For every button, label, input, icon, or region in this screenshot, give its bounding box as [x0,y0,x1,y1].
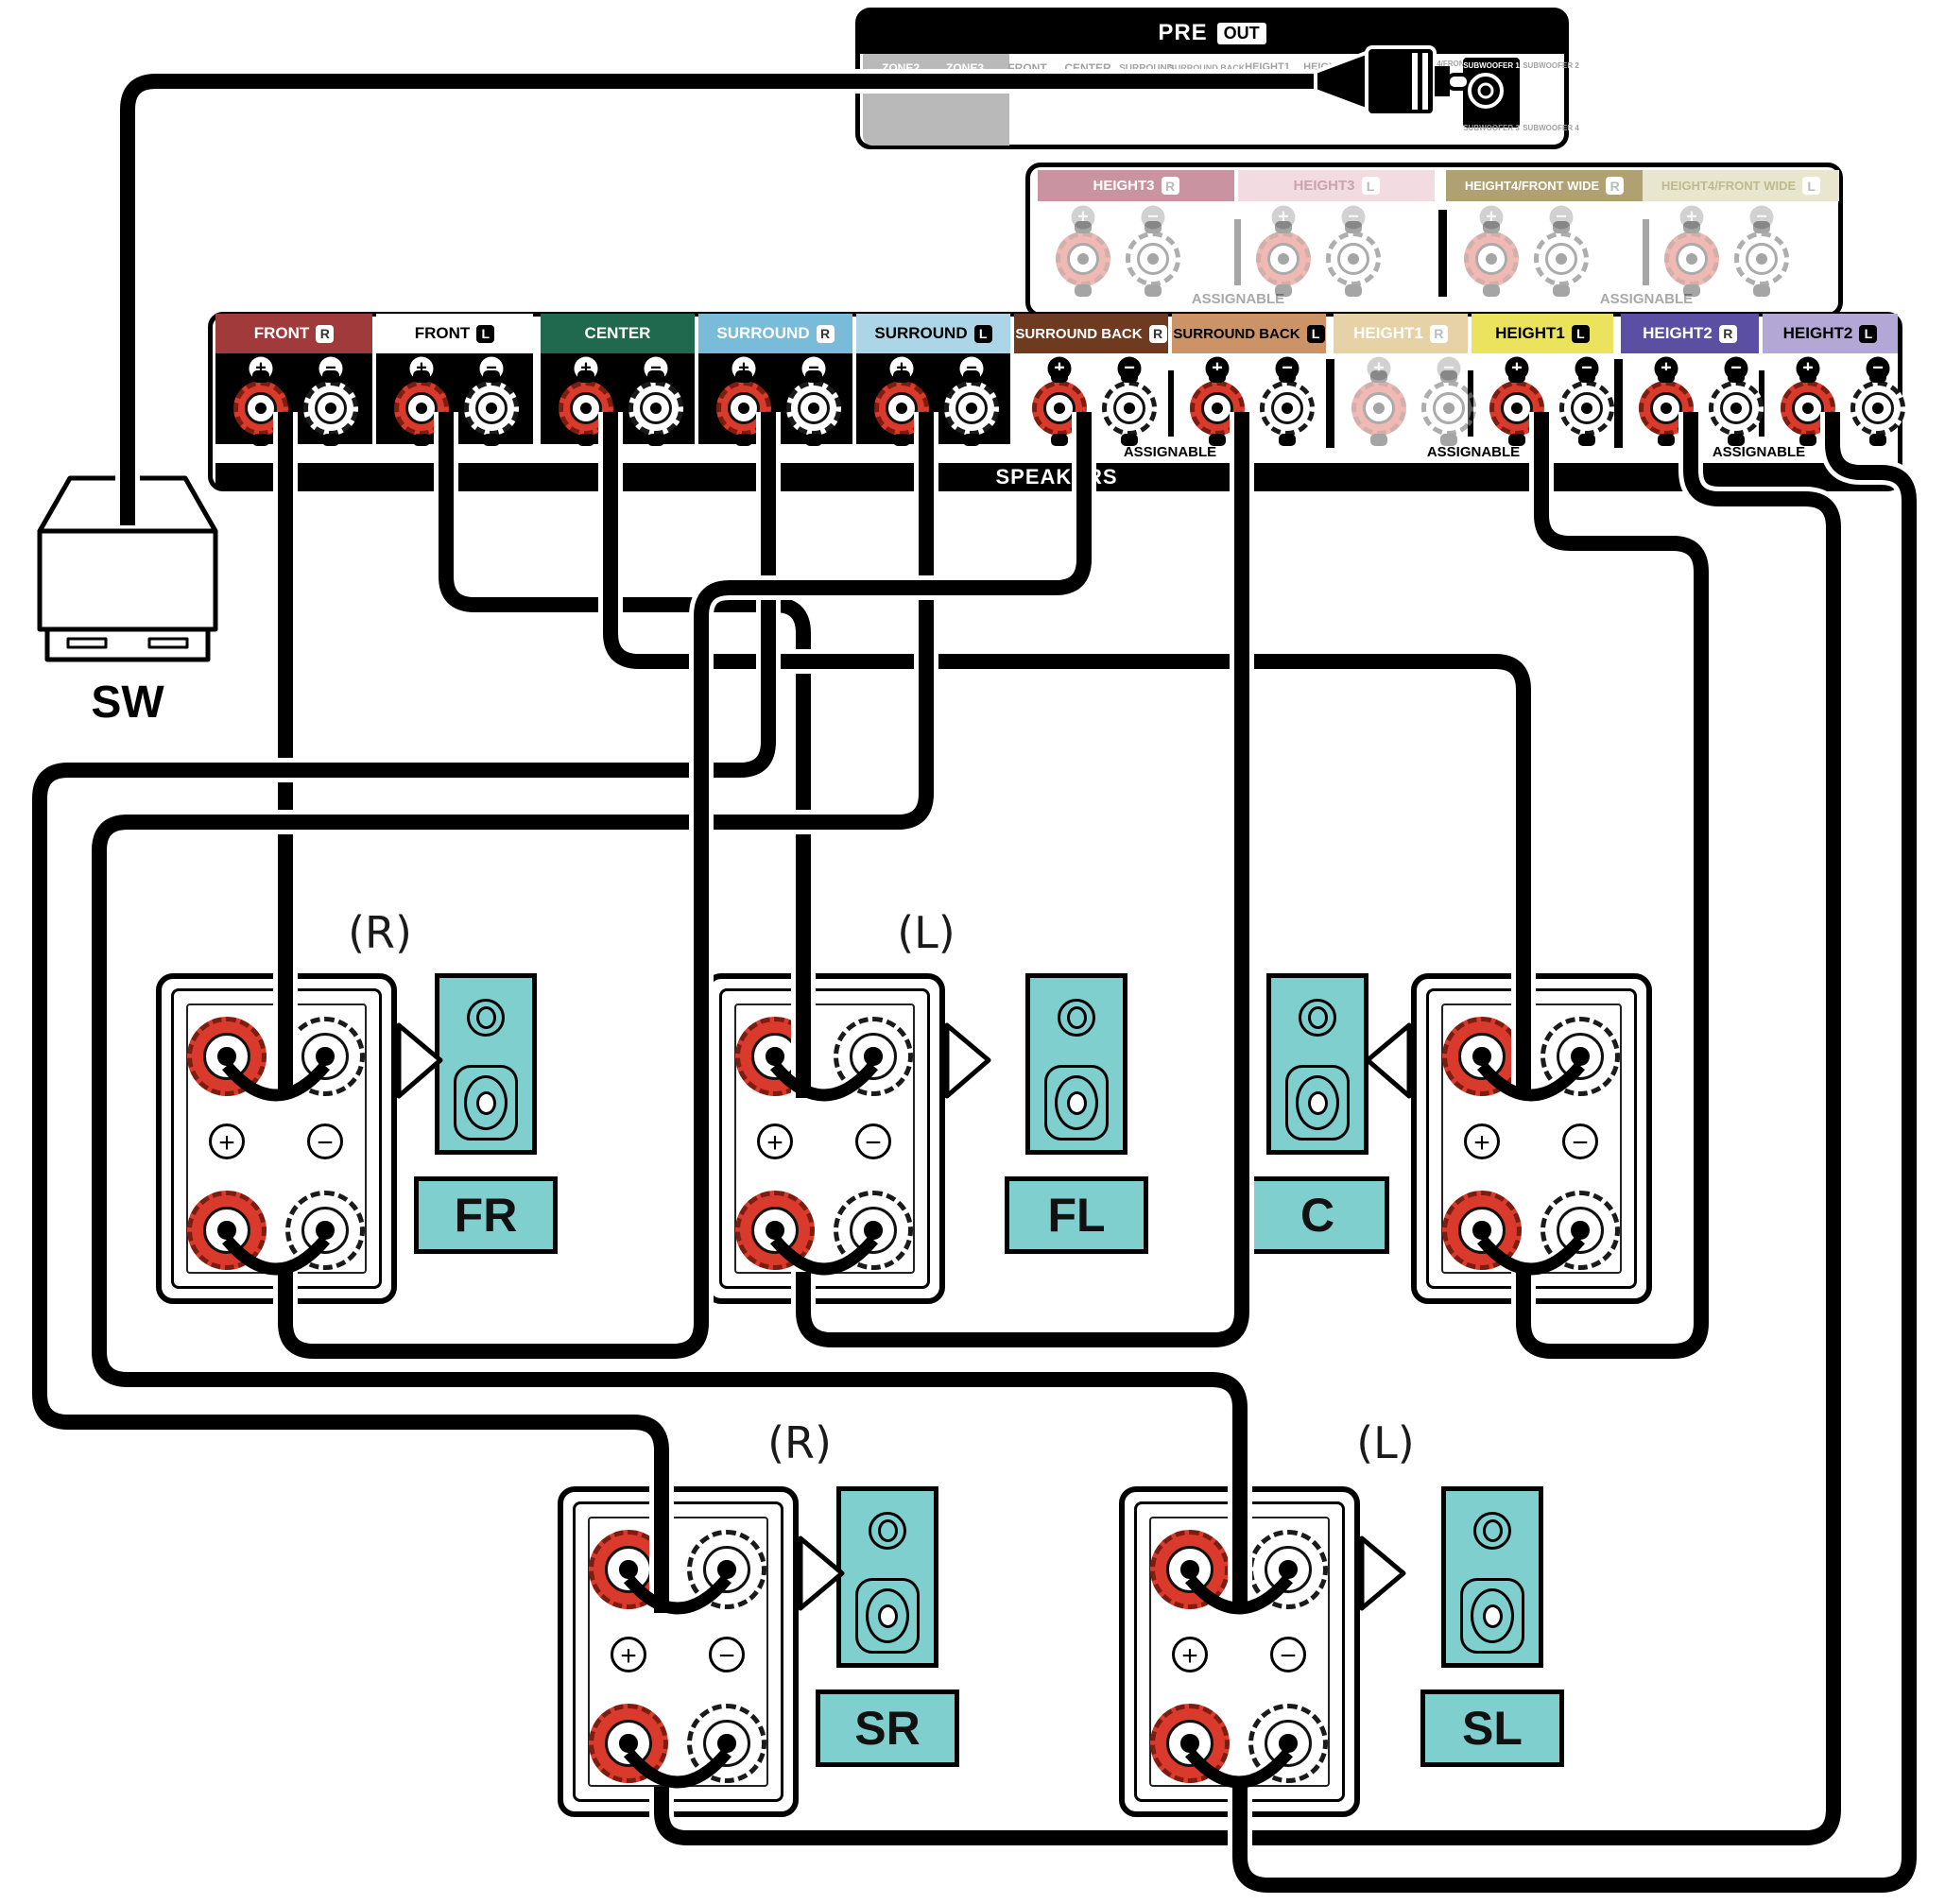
plus-icon: + [209,1124,245,1159]
center-label: C [1246,1176,1389,1254]
preout-sub2: SUBWOOFER 2 [1523,61,1579,70]
binding-post-red [874,381,929,436]
front-right-speaker-terminals [156,973,397,1304]
binding-post-white [1734,232,1789,286]
front-left-speaker-icon [1025,973,1127,1155]
pre-out-panel: PRE OUT ZONE2 ZONE3 FRONT CENTER SURROUN… [855,8,1569,149]
binding-post-white [285,1017,365,1096]
binding-post-white [1534,232,1589,286]
binding-post-red [187,1017,267,1096]
binding-post-white [1102,381,1157,436]
tweeter-icon [1473,1512,1511,1550]
channel-tag-r2: (R) [767,1417,832,1468]
binding-post-red [187,1191,267,1270]
woofer-icon [1044,1065,1109,1141]
preout-surround-back: SURROUND BACK [1169,63,1246,73]
binding-post-white [1541,1191,1620,1270]
binding-post-white [687,1704,766,1783]
callout-c [1368,1025,1409,1096]
binding-post-red [1032,381,1087,436]
binding-post-white [1248,1530,1328,1609]
preout-height3: HEIGHT3 [1360,61,1405,73]
preout-height4: HEIGHT4/FRONT WIDE [1408,60,1469,77]
terminal-surround-r: SURROUNDR [698,314,852,353]
preout-height1: HEIGHT1 [1245,61,1290,73]
subwoofer-box [40,478,215,660]
minus-icon: − [709,1637,745,1672]
terminal-height4-r: HEIGHT4/FRONT WIDER [1446,170,1643,201]
assignable-label: ASSIGNABLE [1427,444,1520,460]
minus-icon: − [1562,1124,1598,1159]
binding-post-red [1639,381,1694,436]
surround-right-speaker-icon [836,1486,938,1668]
binding-post-red [1664,232,1719,286]
front-right-label: FR [414,1176,558,1254]
assignable-label: ASSIGNABLE [1600,291,1693,307]
tweeter-icon [1058,999,1095,1037]
preout-center: CENTER [1064,61,1110,75]
binding-post-red [1056,232,1110,286]
surround-left-speaker-terminals [1119,1486,1360,1817]
subwoofer-label: SW [91,677,164,729]
minus-icon: − [855,1124,891,1159]
pre-out-title: PRE OUT [860,12,1564,54]
speaker-cable-6 [285,412,1084,1351]
terminal-surround-back-l: SURROUND BACKL [1172,314,1326,353]
tweeter-icon [869,1512,906,1550]
speaker-cable-4 [40,412,768,1613]
binding-post-red [1256,232,1311,286]
channel-tag-r1: (R) [348,907,412,958]
plus-icon: + [1172,1637,1208,1672]
binding-post-red [1489,381,1544,436]
binding-post-red [1781,381,1835,436]
binding-post-red [735,1017,815,1096]
pre-label: PRE [1158,20,1207,46]
surround-left-label: SL [1420,1690,1564,1767]
preout-zone2: ZONE2 [882,61,920,75]
preout-height2: HEIGHT2 [1303,61,1349,73]
speakers-bar-label: SPEAKERS [995,465,1117,489]
woofer-icon [855,1578,920,1654]
surround-right-label: SR [816,1690,959,1767]
assignable-label: ASSIGNABLE [1124,444,1216,460]
divider [1168,370,1174,437]
surround-left-speaker-icon [1441,1486,1543,1668]
binding-post-white [786,381,841,436]
center-speaker-icon [1266,973,1368,1155]
divider [1438,210,1447,297]
preout-zone3: ZONE3 [946,61,984,75]
binding-post-red [1464,232,1519,286]
binding-post-red [1190,381,1245,436]
channel-tag-l2: (L) [1356,1417,1415,1468]
binding-post-white [1126,232,1180,286]
plus-icon: + [757,1124,793,1159]
terminal-surround-back-r: SURROUND BACKR [1014,314,1168,353]
binding-post-red [589,1704,668,1783]
terminal-height2-r: HEIGHT2R [1621,314,1759,353]
preout-sub4: SUBWOOFER 4 [1523,124,1579,132]
terminal-center: CENTER [541,314,695,353]
out-badge: OUT [1217,23,1266,44]
terminal-front-r: FRONTR [215,314,372,353]
front-left-label: FL [1005,1176,1148,1254]
terminal-height1-r: HEIGHT1R [1334,314,1468,353]
center-speaker-terminals [1411,973,1652,1304]
tweeter-icon [1299,999,1336,1037]
binding-post-white [628,381,683,436]
callout-fl [947,1025,989,1096]
binding-post-red [1442,1191,1522,1270]
divider [1326,359,1334,448]
terminal-surround-l: SURROUNDL [856,314,1010,353]
terminal-height3-l: HEIGHT3L [1238,170,1435,201]
terminal-height2-l: HEIGHT2L [1763,314,1898,353]
terminal-height3-r: HEIGHT3R [1038,170,1234,201]
channel-tag-l1: (L) [897,907,955,958]
binding-post-white [834,1191,913,1270]
callout-sl [1362,1538,1403,1608]
binding-post-white [1326,232,1381,286]
binding-post-red [716,381,771,436]
binding-post-red [394,381,449,436]
divider [1614,359,1623,448]
front-right-speaker-icon [435,973,537,1155]
terminal-front-l: FRONTL [376,314,533,353]
binding-post-red [1150,1704,1230,1783]
binding-post-white [464,381,519,436]
binding-post-white [1850,381,1905,436]
preout-sub3: SUBWOOFER 3 [1463,124,1520,132]
binding-post-white [1709,381,1764,436]
binding-post-red [1150,1530,1230,1609]
binding-post-white [1421,381,1476,436]
binding-post-red [735,1191,815,1270]
woofer-icon [1460,1578,1524,1654]
binding-post-red [233,381,288,436]
binding-post-red [1442,1017,1522,1096]
binding-post-white [1260,381,1315,436]
divider [1643,219,1649,285]
terminal-height1-l: HEIGHT1L [1472,314,1613,353]
preout-front: FRONT [1007,61,1046,75]
minus-icon: − [307,1124,343,1159]
binding-post-red [589,1530,668,1609]
plus-icon: + [1464,1124,1500,1159]
preout-surround: SURROUND [1119,63,1174,74]
surround-right-speaker-terminals [558,1486,799,1817]
binding-post-white [834,1017,913,1096]
binding-post-red [1351,381,1406,436]
binding-post-white [1248,1704,1328,1783]
woofer-icon [1285,1065,1350,1141]
binding-post-white [303,381,358,436]
tweeter-icon [467,999,505,1037]
binding-post-white [1541,1017,1620,1096]
binding-post-white [285,1191,365,1270]
woofer-icon [454,1065,518,1141]
divider [1234,219,1241,285]
assignable-label: ASSIGNABLE [1192,291,1284,307]
binding-post-white [687,1530,766,1609]
binding-post-white [1559,381,1614,436]
front-left-speaker-terminals [704,973,945,1304]
binding-post-white [944,381,999,436]
terminal-height4-l: HEIGHT4/FRONT WIDEL [1643,170,1839,201]
preout-sub1: SUBWOOFER 1 [1463,61,1520,70]
minus-icon: − [1270,1637,1306,1672]
binding-post-red [559,381,613,436]
assignable-label: ASSIGNABLE [1713,444,1805,460]
plus-icon: + [611,1637,646,1672]
